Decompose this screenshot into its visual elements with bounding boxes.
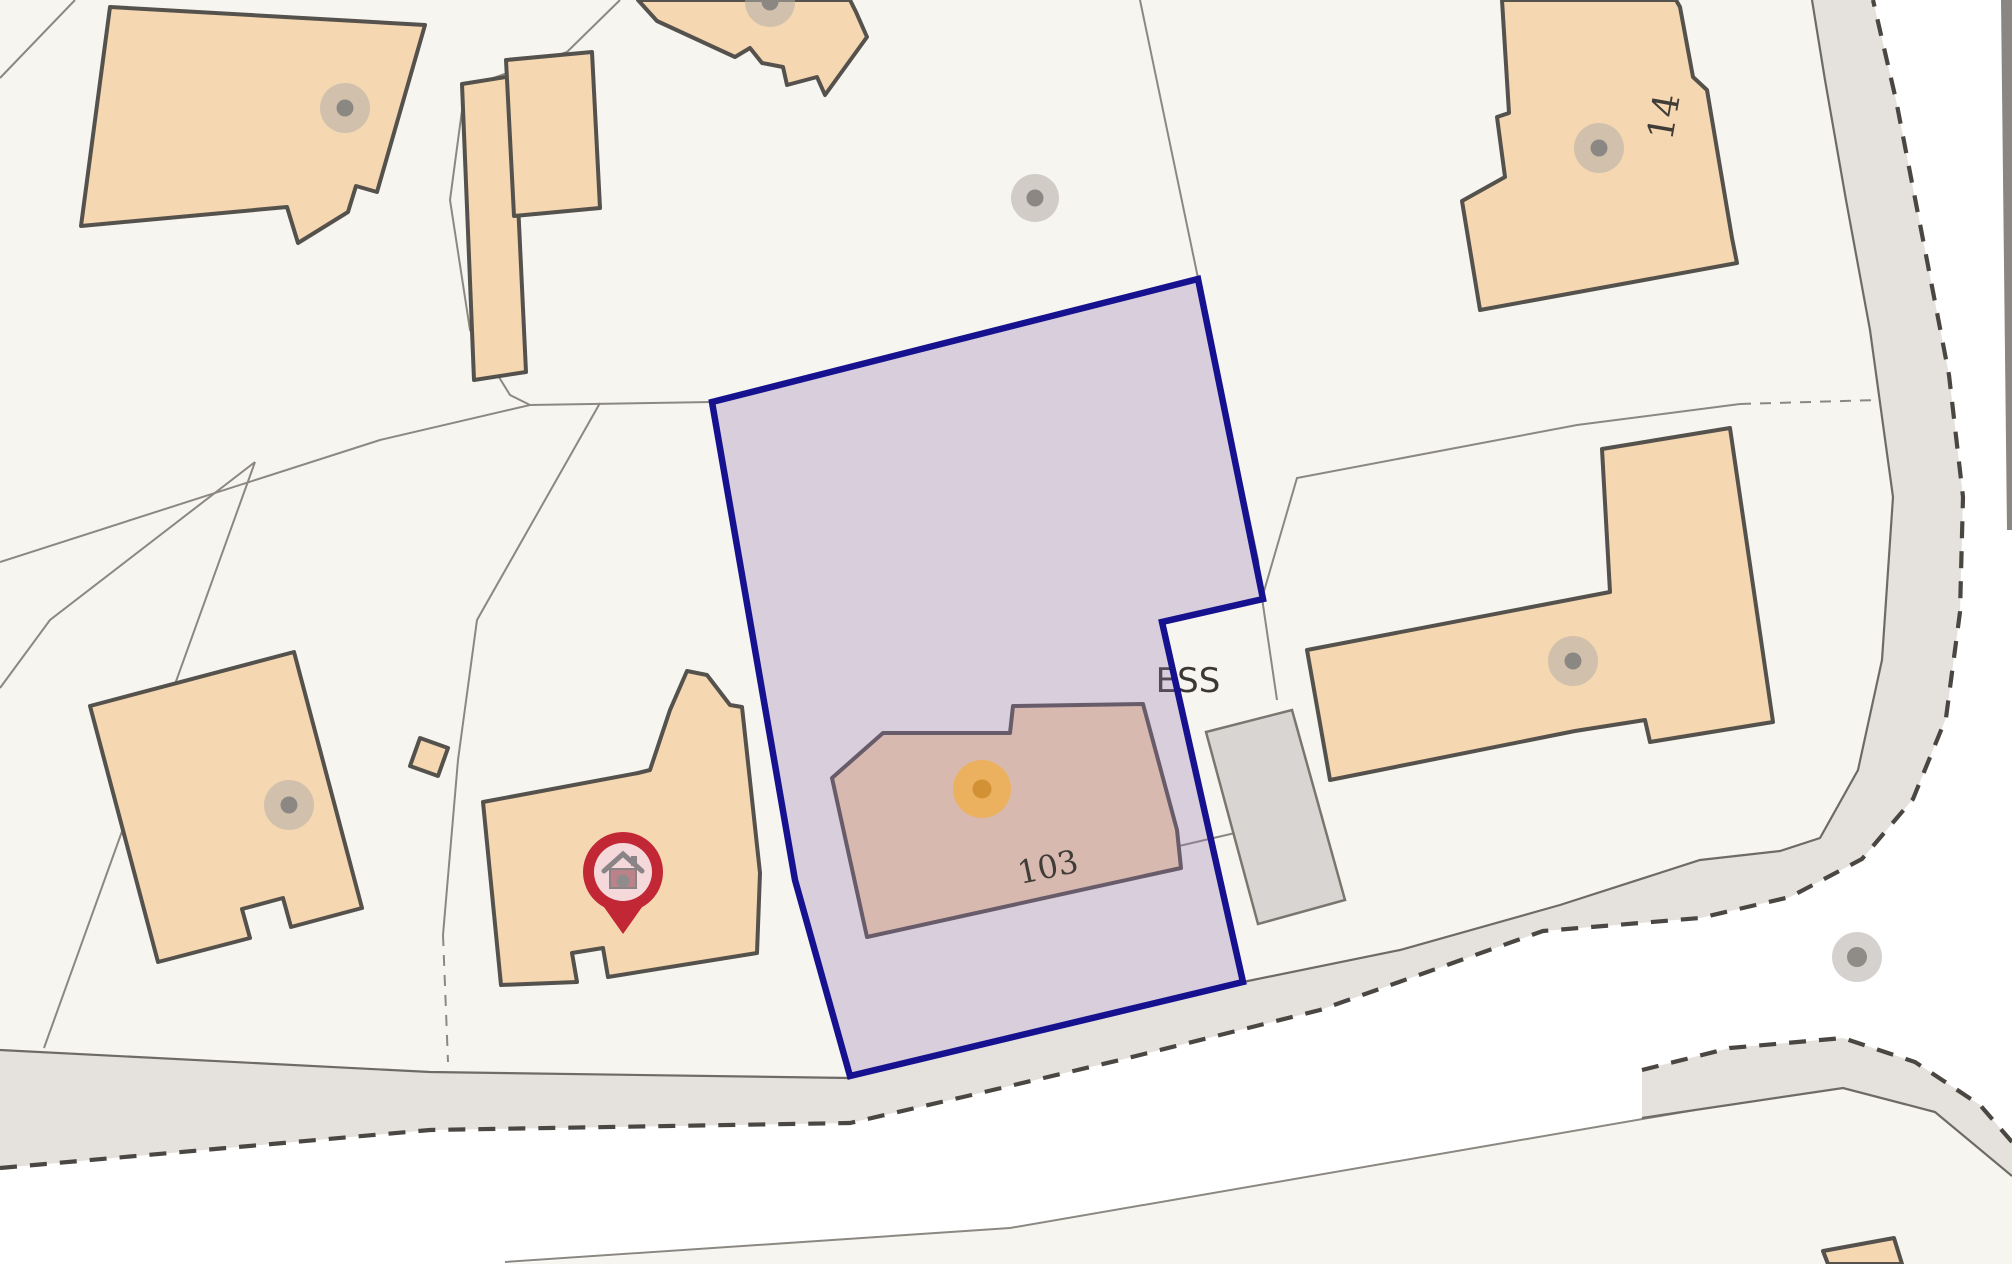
feature-dot-icon [1832,932,1882,982]
feature-dot-icon [1574,123,1624,173]
cadastral-map: ESS 103 14 [0,0,2012,1264]
feature-dot-icon [1011,174,1059,222]
building-narrow-right [506,52,600,216]
plot-centre-dot-icon [953,760,1011,818]
feature-dot-icon [1548,636,1598,686]
feature-dot-icon [320,83,370,133]
house-14-label: 14 [1640,91,1688,143]
feature-dot-icon [264,780,314,830]
